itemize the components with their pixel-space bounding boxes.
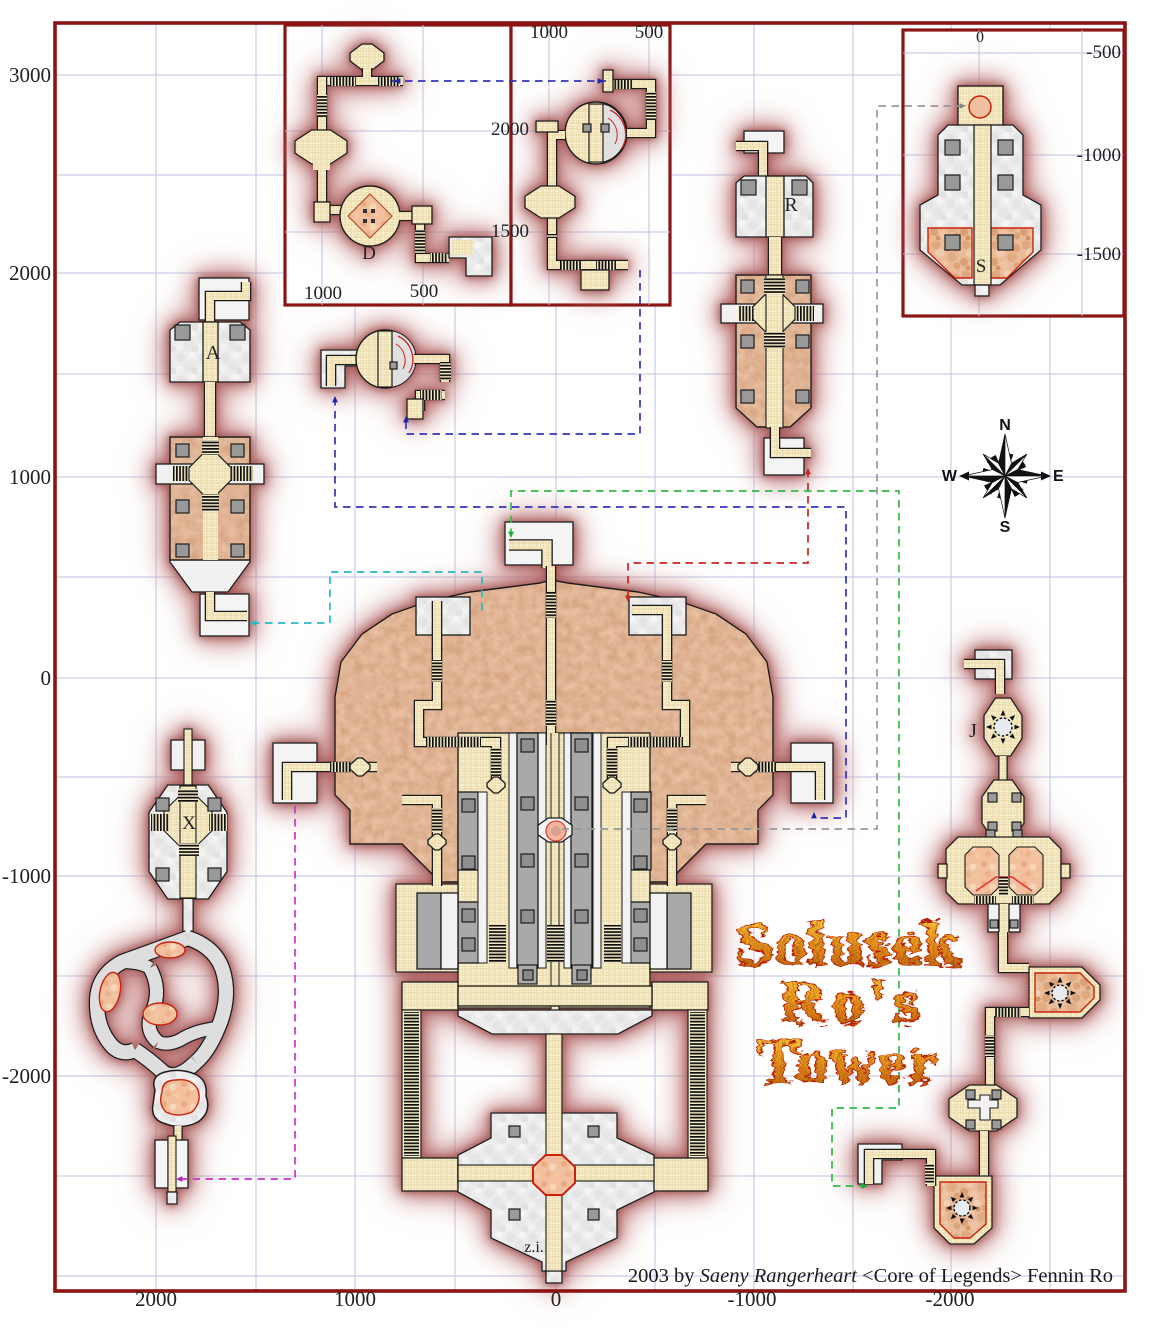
svg-text:-1000: -1000 xyxy=(1077,145,1121,166)
svg-text:500: 500 xyxy=(410,281,439,302)
svg-text:R: R xyxy=(784,194,798,216)
svg-text:A: A xyxy=(206,342,221,364)
svg-text:S: S xyxy=(1000,519,1011,536)
svg-text:-500: -500 xyxy=(1086,42,1121,63)
svg-text:E: E xyxy=(1053,468,1064,485)
svg-text:J: J xyxy=(969,720,977,742)
svg-text:0: 0 xyxy=(976,29,984,46)
svg-text:-2000: -2000 xyxy=(926,1287,975,1311)
svg-text:2000: 2000 xyxy=(491,119,529,140)
svg-text:0: 0 xyxy=(41,666,52,690)
svg-text:Tower: Tower xyxy=(754,1023,936,1094)
svg-text:2000: 2000 xyxy=(9,261,51,285)
svg-text:S: S xyxy=(976,256,987,277)
svg-text:3000: 3000 xyxy=(9,63,51,87)
svg-text:X: X xyxy=(182,813,196,834)
svg-text:-1500: -1500 xyxy=(1077,244,1121,265)
svg-text:D: D xyxy=(362,243,376,264)
svg-text:1000: 1000 xyxy=(334,1287,376,1311)
svg-text:W: W xyxy=(942,468,958,485)
svg-text:-2000: -2000 xyxy=(2,1064,51,1088)
svg-text:N: N xyxy=(999,417,1011,434)
svg-text:z.i.: z.i. xyxy=(524,1239,544,1256)
svg-text:1000: 1000 xyxy=(530,22,568,43)
svg-text:2003 by Saeny Rangerheart <Cor: 2003 by Saeny Rangerheart <Core of Legen… xyxy=(628,1265,1113,1287)
svg-text:0: 0 xyxy=(551,1287,562,1311)
svg-text:-1000: -1000 xyxy=(2,864,51,888)
svg-text:1000: 1000 xyxy=(9,465,51,489)
svg-text:500: 500 xyxy=(635,22,664,43)
svg-text:-1000: -1000 xyxy=(728,1287,777,1311)
svg-text:1000: 1000 xyxy=(304,283,342,304)
svg-text:1500: 1500 xyxy=(491,221,529,242)
svg-text:2000: 2000 xyxy=(135,1287,177,1311)
